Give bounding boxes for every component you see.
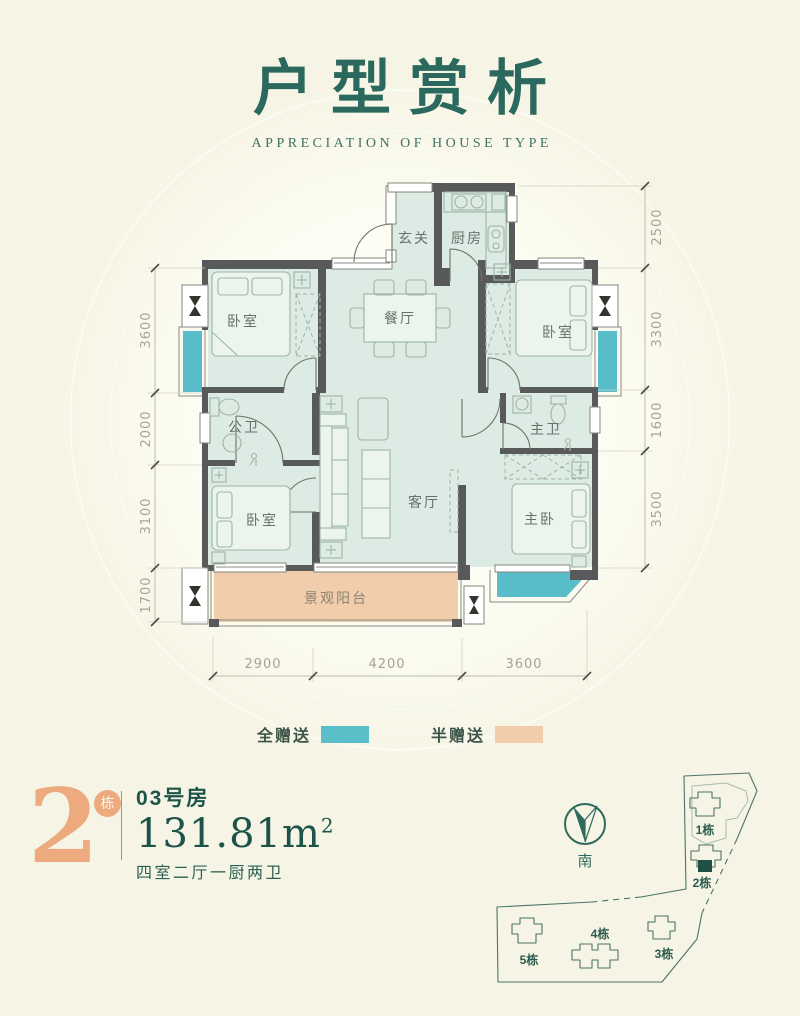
dim-bottom-1: 2900 <box>244 657 281 672</box>
compass-needle-icon <box>573 806 585 842</box>
legend-full-gift-label: 全赠送 <box>257 722 311 746</box>
ac-unit-icon <box>182 285 208 327</box>
dim-right-3: 1600 <box>650 401 665 438</box>
building-5-label: 5栋 <box>520 952 539 967</box>
building-4-label: 4栋 <box>591 926 610 941</box>
building-1-label: 1栋 <box>696 822 715 837</box>
dim-right-2: 3300 <box>650 310 665 347</box>
building-unit-badge: 栋 <box>94 790 121 817</box>
compass-south-label: 南 <box>577 853 592 870</box>
sofa-seat <box>332 428 348 526</box>
unit-details: 03号房 131.81m2 四室二厅一厨两卫 <box>136 782 335 883</box>
building-3-footprint <box>648 916 675 939</box>
building-number: 2 <box>28 778 99 878</box>
sofa-armrest <box>320 528 346 540</box>
dim-right-1: 2500 <box>650 208 665 245</box>
legend-item-half-gift: 半赠送 <box>431 722 543 746</box>
bed <box>516 280 592 356</box>
dim-left-1: 3600 <box>139 311 154 348</box>
poster-page: 户型赏析 APPRECIATION OF HOUSE TYPE <box>0 0 800 1016</box>
site-map: 1栋 2栋 3栋 4栋 5栋 <box>497 773 757 982</box>
legend-item-full-gift: 全赠送 <box>257 722 369 746</box>
legend-half-gift-label: 半赠送 <box>431 722 485 746</box>
compass: 南 <box>565 804 605 870</box>
room-label-master-bedroom: 主卧 <box>524 511 556 527</box>
room-label-dining: 餐厅 <box>384 310 416 326</box>
dim-left-3: 3100 <box>139 497 154 534</box>
current-unit-marker <box>698 860 712 872</box>
dim-right-4: 3500 <box>650 490 665 527</box>
dim-bottom-2: 4200 <box>368 657 405 672</box>
area-value: 131.81m <box>136 811 321 857</box>
divider <box>121 791 122 860</box>
sofa-back <box>320 426 332 528</box>
floor-plan-canvas: 玄关 厨房 卧室 卧室 餐厅 公卫 客厅 主卫 卧室 主卧 景观阳台 3600 … <box>0 0 800 1016</box>
unit-area: 131.81m2 <box>136 813 335 855</box>
gift-legend: 全赠送 半赠送 <box>0 722 800 746</box>
building-1-footprint <box>690 792 720 816</box>
room-label-kitchen: 厨房 <box>451 230 483 246</box>
building-3-label: 3栋 <box>655 946 674 961</box>
ac-unit-icon <box>464 586 484 624</box>
dim-left-2: 2000 <box>139 410 154 447</box>
sofa-armrest <box>320 414 346 426</box>
gift-zone-right <box>598 331 617 392</box>
room-label-bedroom-tr: 卧室 <box>542 324 574 340</box>
ac-unit-icon <box>592 285 618 327</box>
building-5-footprint <box>512 918 542 943</box>
room-label-public-bath: 公卫 <box>228 419 260 435</box>
room-label-entry: 玄关 <box>398 230 430 246</box>
room-number: 03号房 <box>136 782 335 812</box>
room-label-bedroom-tl: 卧室 <box>227 313 259 329</box>
legend-half-gift-swatch <box>495 726 543 743</box>
room-label-bedroom-bl: 卧室 <box>246 512 278 528</box>
coffee-table <box>362 450 390 538</box>
unit-layout: 四室二厅一厨两卫 <box>136 859 335 883</box>
dim-left-4: 1700 <box>139 576 154 613</box>
dim-bottom-3: 3600 <box>505 657 542 672</box>
gift-zone-left <box>183 331 202 392</box>
room-label-balcony: 景观阳台 <box>304 590 368 606</box>
area-exponent: 2 <box>321 814 335 838</box>
site-boundary <box>497 902 702 982</box>
building-2-label: 2栋 <box>693 875 712 890</box>
building-4-footprint <box>572 944 618 968</box>
floor-fills <box>183 189 617 622</box>
site-road <box>592 897 641 902</box>
room-label-living: 客厅 <box>408 494 440 510</box>
legend-full-gift-swatch <box>321 726 369 743</box>
room-label-master-bath: 主卫 <box>530 421 562 437</box>
ac-unit-icon <box>182 568 208 624</box>
